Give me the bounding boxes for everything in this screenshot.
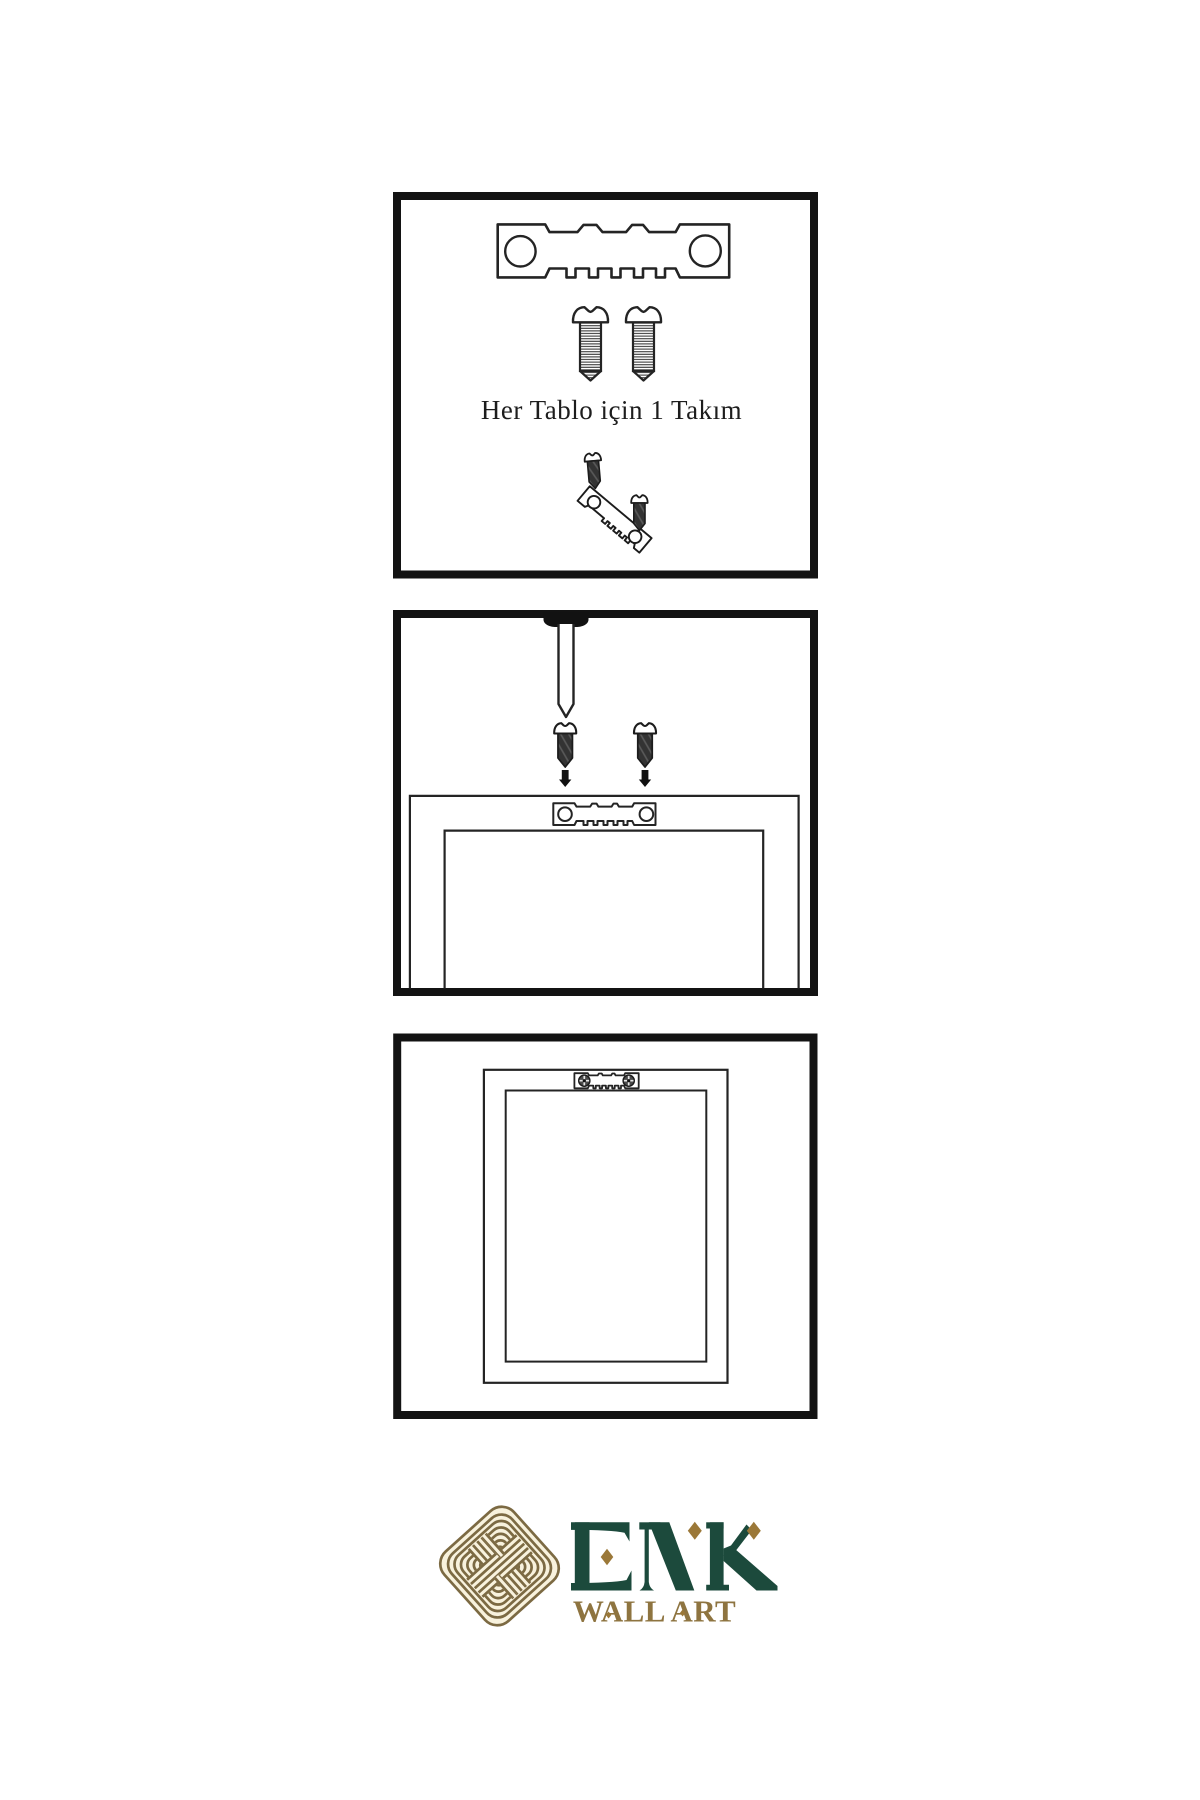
svg-text:WALL ART: WALL ART (573, 1594, 736, 1629)
svg-text:Her Tablo için 1 Takım: Her Tablo için 1 Takım (481, 395, 742, 425)
